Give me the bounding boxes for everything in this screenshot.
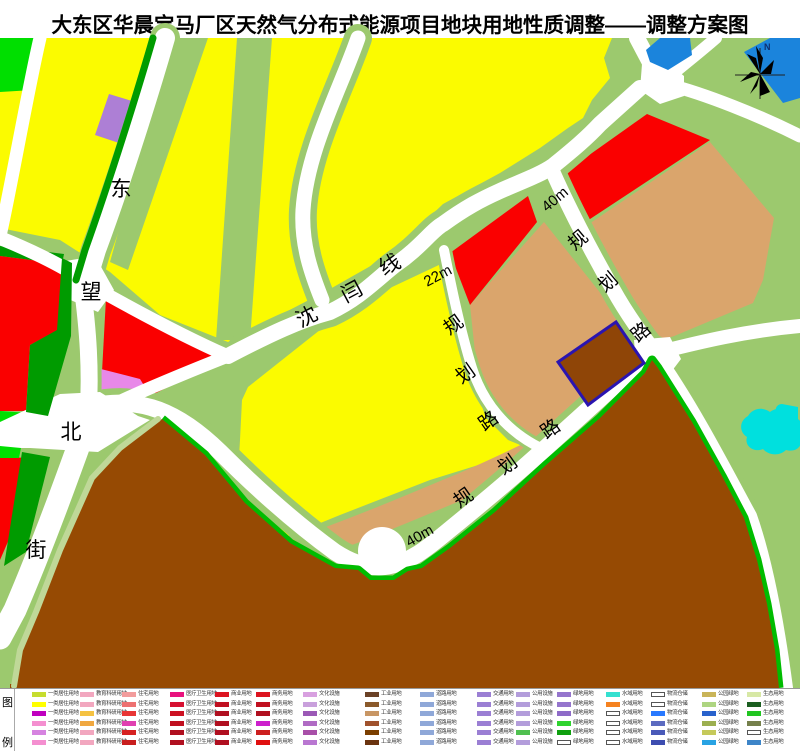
svg-text:望: 望 — [81, 281, 102, 304]
svg-text:东: 东 — [111, 178, 132, 201]
svg-text:街: 街 — [26, 539, 47, 562]
svg-text:北: 北 — [61, 421, 82, 444]
svg-text:N: N — [764, 42, 771, 52]
